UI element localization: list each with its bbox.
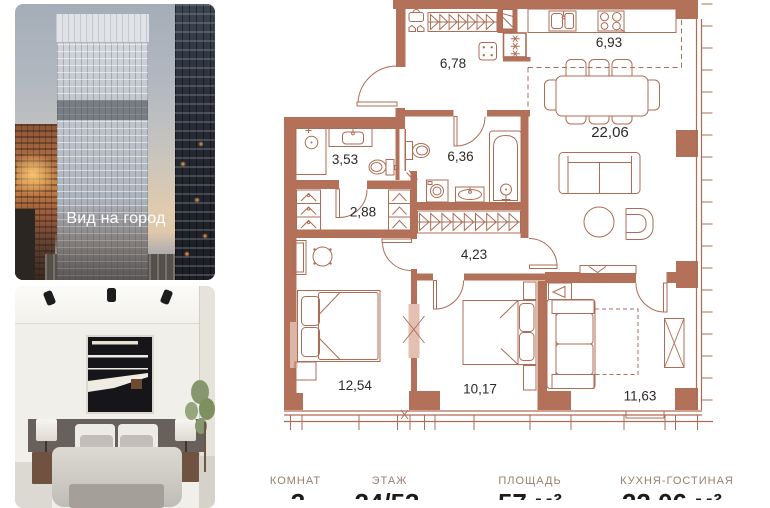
svg-text:3: 3 xyxy=(291,488,305,500)
svg-text:11,63: 11,63 xyxy=(624,389,657,404)
svg-text:10,17: 10,17 xyxy=(463,382,497,397)
svg-text:3,53: 3,53 xyxy=(332,152,358,167)
svg-text:22,06 м²: 22,06 м² xyxy=(622,488,723,500)
svg-text:КУХНЯ-ГОСТИНАЯ: КУХНЯ-ГОСТИНАЯ xyxy=(620,475,734,487)
svg-text:КОМНАТ: КОМНАТ xyxy=(270,475,321,487)
svg-text:ЭТАЖ: ЭТАЖ xyxy=(372,475,408,487)
svg-text:4,23: 4,23 xyxy=(461,247,487,262)
svg-text:6,36: 6,36 xyxy=(447,149,473,164)
svg-text:57 м²: 57 м² xyxy=(498,488,562,500)
svg-text:22,06: 22,06 xyxy=(591,124,629,141)
svg-text:12,54: 12,54 xyxy=(338,378,372,393)
svg-text:6,93: 6,93 xyxy=(596,35,622,50)
svg-text:ПЛОЩАДЬ: ПЛОЩАДЬ xyxy=(498,475,561,487)
svg-text:6,78: 6,78 xyxy=(440,56,466,71)
svg-text:2,88: 2,88 xyxy=(350,205,376,220)
svg-text:24/53: 24/53 xyxy=(354,488,419,500)
